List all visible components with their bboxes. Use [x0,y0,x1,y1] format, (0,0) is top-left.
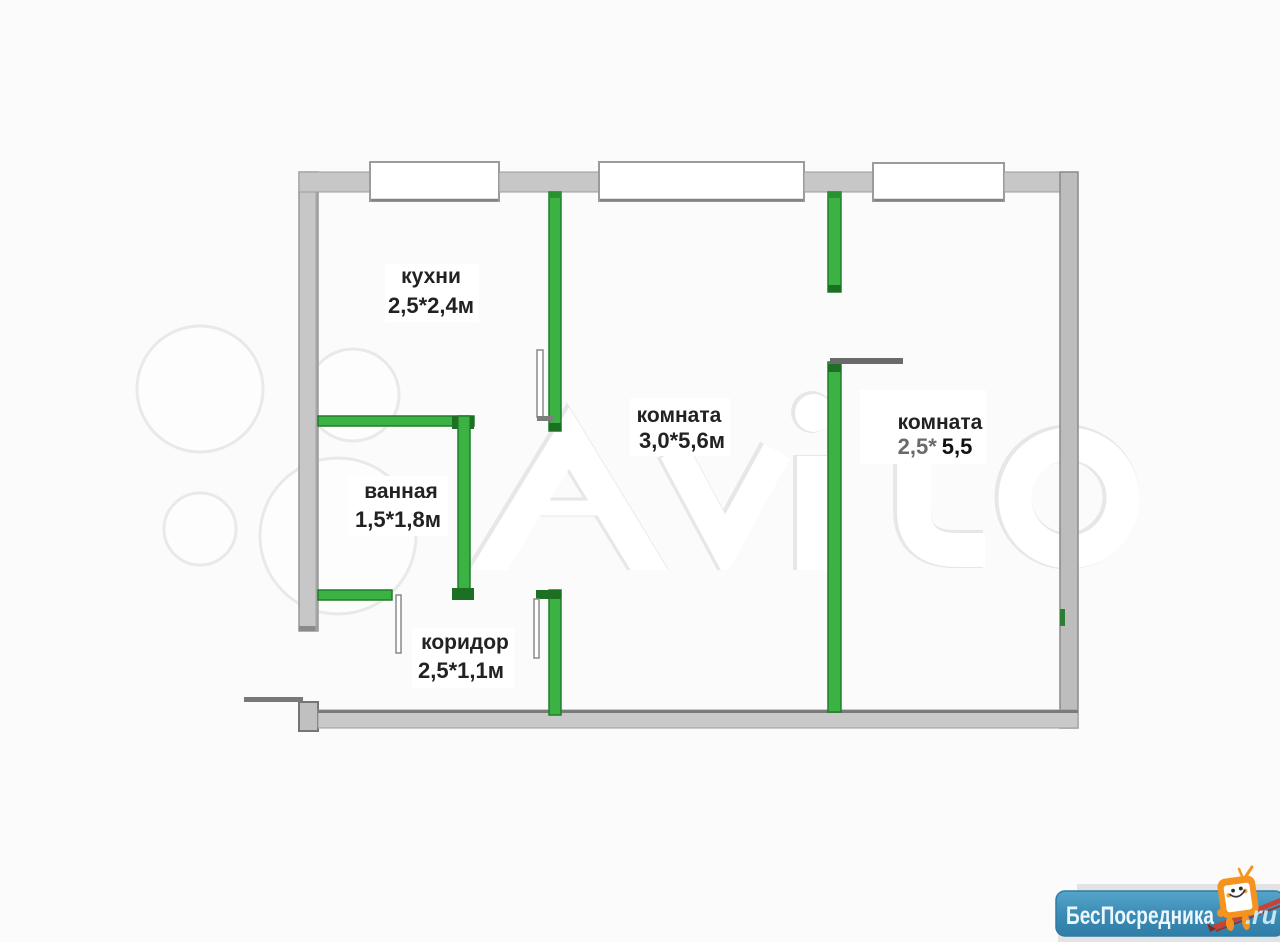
svg-text:2,5*5,5: 2,5*5,5 [898,434,973,459]
svg-text:кухни: кухни [401,265,461,288]
svg-text:.ru: .ru [1245,902,1277,930]
svg-text:БесПосредника: БесПосредника [1066,902,1215,930]
svg-text:2,5*1,1м: 2,5*1,1м [418,658,504,683]
svg-text:комната: комната [898,411,983,434]
svg-text:3,0*5,6м: 3,0*5,6м [639,428,725,453]
svg-text:коридор: коридор [421,631,509,654]
svg-text:комната: комната [637,404,722,427]
svg-text:1,5*1,8м: 1,5*1,8м [355,507,441,532]
svg-text:ванная: ванная [364,480,438,503]
svg-text:2,5*2,4м: 2,5*2,4м [388,293,474,318]
